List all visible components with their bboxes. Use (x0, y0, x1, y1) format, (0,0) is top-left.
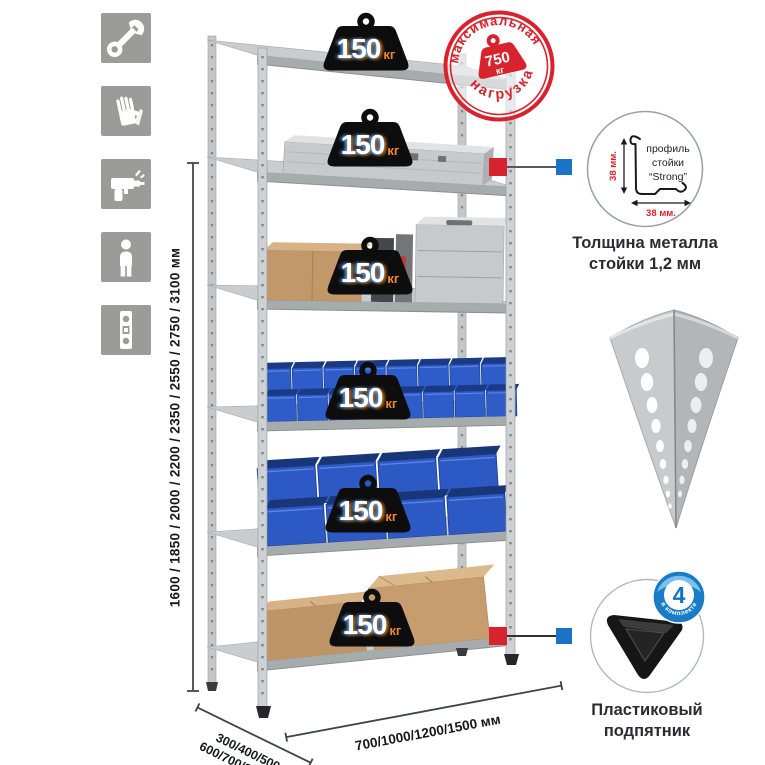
gloves-icon (101, 86, 151, 136)
shelf-load-weight-6: 150кг (328, 588, 416, 652)
max-load-stamp: максимальная нагрузка 750 кг (429, 0, 568, 136)
load-value: 150 (341, 257, 385, 288)
drill-tile (101, 159, 151, 209)
profile-caption-line2: стойки 1,2 мм (560, 254, 730, 275)
shelf-load-weight-5: 150кг (324, 474, 412, 538)
product-infographic: 1600 / 1850 / 2000 / 2200 / 2350 / 2550 … (0, 0, 765, 765)
bottom-callout-connector (485, 622, 577, 648)
shelf-load-weight-3: 150кг (326, 236, 414, 300)
wrench-tile (101, 13, 151, 63)
load-value: 150 (341, 129, 385, 160)
load-unit: кг (385, 509, 397, 524)
load-unit: кг (389, 623, 401, 638)
level-tile (101, 305, 151, 355)
profile-label-3: “Strong” (649, 171, 687, 183)
profile-caption: Толщина металла стойки 1,2 мм (560, 233, 730, 276)
red-marker (489, 627, 507, 645)
height-dimension-label: 1600 / 1850 / 2000 / 2200 / 2350 / 2550 … (168, 158, 183, 698)
foot-caption: Пластиковый подпятник (562, 700, 732, 743)
drill-icon (101, 159, 151, 209)
quantity-badge: 4 в комплекте (652, 570, 706, 624)
person-tile (101, 232, 151, 282)
person-icon (101, 232, 151, 282)
level-icon (101, 305, 151, 355)
gloves-tile (101, 86, 151, 136)
top-callout-connector (485, 154, 577, 180)
profile-label-2: стойки (652, 157, 684, 169)
foot-caption-line1: Пластиковый (562, 700, 732, 721)
load-value: 150 (339, 382, 383, 413)
load-value: 150 (339, 495, 383, 526)
angle-post-image (600, 296, 748, 538)
wrench-icon (101, 13, 151, 63)
post-profile-detail: 38 мм. 38 мм. профиль стойки “Strong” (584, 108, 706, 230)
foot-caption-line2: подпятник (562, 721, 732, 742)
load-unit: кг (387, 143, 399, 158)
shelf-load-weight-1: 150кг (322, 12, 410, 76)
load-value: 150 (343, 609, 387, 640)
red-marker (489, 158, 507, 176)
profile-label-1: профиль (646, 143, 690, 155)
blue-marker (556, 628, 572, 644)
load-unit: кг (383, 47, 395, 62)
profile-dim-horizontal: 38 мм. (646, 208, 676, 219)
profile-dim-vertical: 38 мм. (608, 151, 619, 181)
shelf-load-weight-2: 150кг (326, 108, 414, 172)
load-value: 150 (337, 33, 381, 64)
badge-value: 4 (673, 582, 686, 608)
blue-marker (556, 159, 572, 175)
shelf-load-weight-4: 150кг (324, 361, 412, 425)
load-unit: кг (387, 271, 399, 286)
profile-caption-line1: Толщина металла (560, 233, 730, 254)
load-unit: кг (385, 396, 397, 411)
